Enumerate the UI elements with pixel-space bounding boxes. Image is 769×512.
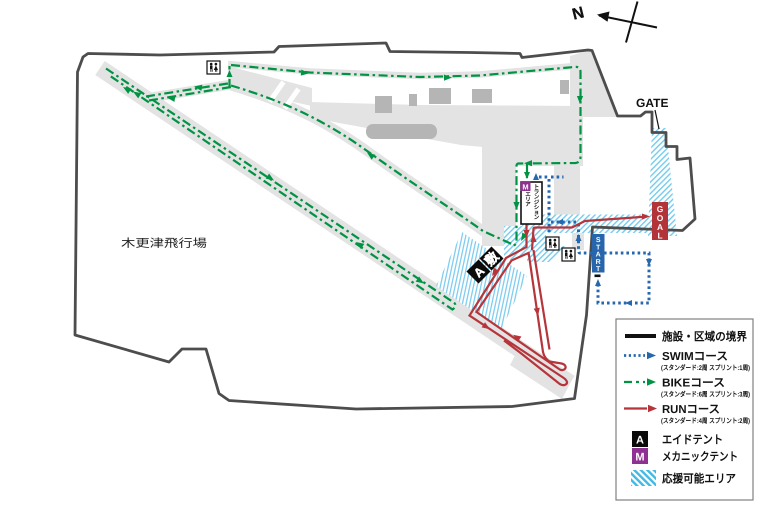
svg-text:BIKEコース: BIKEコース (662, 378, 725, 390)
svg-text:N: N (571, 4, 586, 23)
svg-text:(スタンダード:4周 スプリント:2周): (スタンダード:4周 スプリント:2周) (661, 417, 750, 425)
svg-text:M: M (635, 452, 644, 464)
svg-text:M: M (522, 182, 528, 191)
svg-text:応援可能エリア: 応援可能エリア (662, 473, 736, 486)
svg-text:エイドテント: エイドテント (662, 434, 723, 447)
svg-text:施設・区域の境界: 施設・区域の境界 (662, 330, 747, 344)
svg-text:A: A (636, 435, 644, 447)
svg-text:RUNコース: RUNコース (662, 404, 720, 416)
svg-text:メカニックテント: メカニックテント (662, 451, 738, 464)
svg-text:木更津飛行場: 木更津飛行場 (121, 237, 208, 250)
svg-text:エリア: エリア (525, 192, 531, 208)
svg-text:START: START (596, 237, 601, 273)
svg-text:トランジション: トランジション (534, 184, 540, 222)
svg-text:(スタンダード:6周 スプリント:3周): (スタンダード:6周 スプリント:3周) (661, 391, 750, 399)
svg-text:GATE: GATE (636, 96, 668, 110)
svg-text:SWIMコース: SWIMコース (662, 351, 728, 363)
svg-text:(スタンダード:2周 スプリント:1周): (スタンダード:2周 スプリント:1周) (661, 364, 750, 372)
